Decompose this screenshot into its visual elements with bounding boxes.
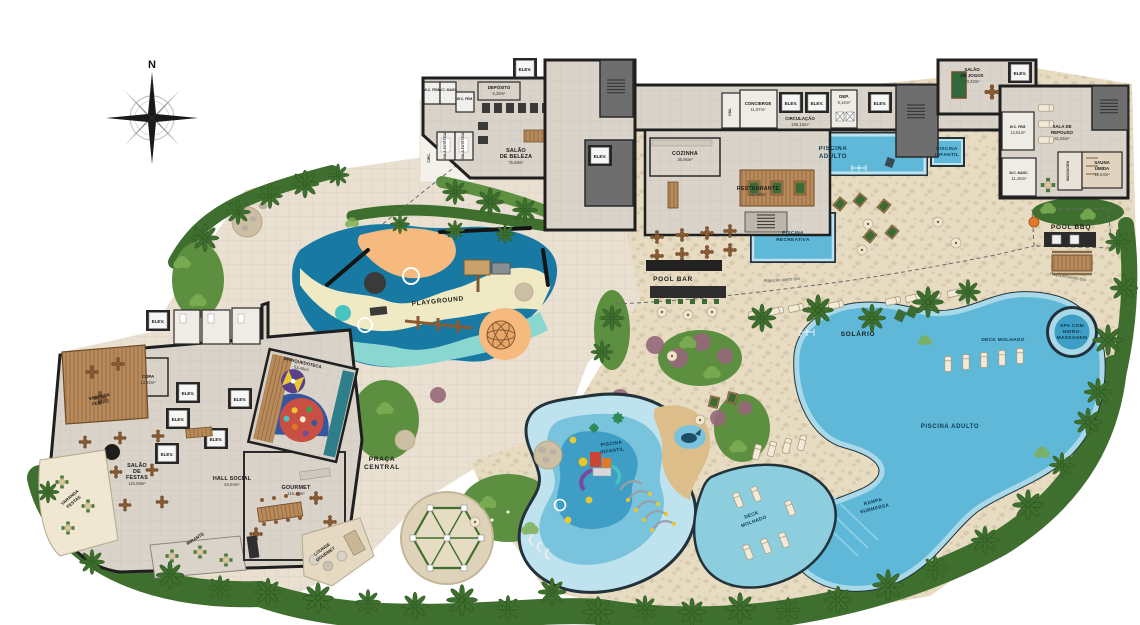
pool-label: INFANTIL [935,152,959,158]
pool-label: ADULTO [819,154,847,160]
room-label: DE JOGOS [961,73,984,78]
pool-label: PISCINA [936,146,958,152]
elevator [166,408,190,429]
elevator [228,388,252,409]
elevator [176,382,200,403]
room-label: SALÃO [506,147,526,154]
room-label: W.C. MASC. [1009,171,1028,175]
room-label: W.C. FEM. [457,97,473,101]
room-area: 35,95m² [677,157,693,162]
solario-label: SOLÁRIO [841,329,876,338]
elevator [588,145,612,166]
site-plan: ELEV. [0,0,1140,625]
varanda-festas-2-deck [39,450,118,556]
room-label: CIRC. [427,153,431,162]
room-label: DEP. [839,94,849,99]
compass-north-label: N [148,59,156,71]
room-label: SALA ESTÉTICA [442,132,447,159]
room-area: 6,29m² [492,91,506,96]
elevator [779,92,803,113]
room-label: CONCIERGE [745,101,772,106]
elevator [868,92,892,113]
room-label: SALA DE [1052,124,1071,129]
room-label: SALÃO [127,462,147,469]
room-area: 117,85m² [749,192,767,197]
praca-central-label: PRAÇA [369,456,396,463]
praca-central-label: CENTRAL [364,464,400,471]
room-area: 110,09m² [128,481,146,486]
room-area: 166,15m² [791,122,809,127]
room-label: SAUNA [1094,160,1110,165]
pool-bar-label: POOL BAR [653,276,693,283]
room-area: 8,14m² [837,100,851,105]
climbing-dome [487,320,515,349]
room-area: 115,47m² [287,491,305,496]
room-label: W.C. MASC. [438,88,457,92]
pool-bbq-label: POOL BBQ [1051,224,1091,231]
elevator [1008,62,1032,83]
room-label: DML [728,108,732,115]
varanda-festas-1-deck [62,345,148,424]
elevator [155,443,179,464]
room-label: ÚMIDA [1095,166,1110,171]
room-area: 13,32m² [140,380,156,385]
deck-label: DECK MOLHADO [981,337,1024,343]
room-area: 75,68m² [508,160,524,165]
pool-label: PISCINA [782,230,804,236]
spa-label: SPA COM [1060,323,1084,329]
room-area: 51,65m² [1054,136,1070,141]
room-label: CIRCULAÇÃO [785,116,815,121]
pool-label: RECREATIVA [776,237,810,243]
room-label: COPA [142,374,155,379]
room-label: DEPÓSITO [488,85,511,90]
room-area: 12,81m² [1010,130,1026,135]
room-label: MASSAGEM [1066,161,1070,181]
pool-bar-counter [646,260,722,271]
room-label: SALA ESTÉTICA [460,132,465,159]
floor-plan-canvas: ELEV. [0,0,1140,625]
elevator [146,310,170,331]
room-area: 11,97m² [750,107,766,112]
room-area: 11,46m² [1011,176,1027,181]
spa-label: HIDRO- [1063,329,1082,335]
spa-label: MASSAGEM [1057,335,1088,341]
pool-label: PISCINA [819,146,848,152]
room-label: W.C. FEM. [1010,125,1026,129]
room-area: 12,64m² [1094,172,1110,177]
room-label: REPOUSO [1051,130,1074,135]
room-area: 64,94m² [224,482,240,487]
room-area: 33,32m² [964,79,980,84]
pool-label: PISCINA ADULTO [921,424,979,430]
pool-bar-counter-2 [650,286,726,298]
room-label: SALÃO [964,67,980,72]
elevator [513,58,537,79]
elevator [805,92,829,113]
